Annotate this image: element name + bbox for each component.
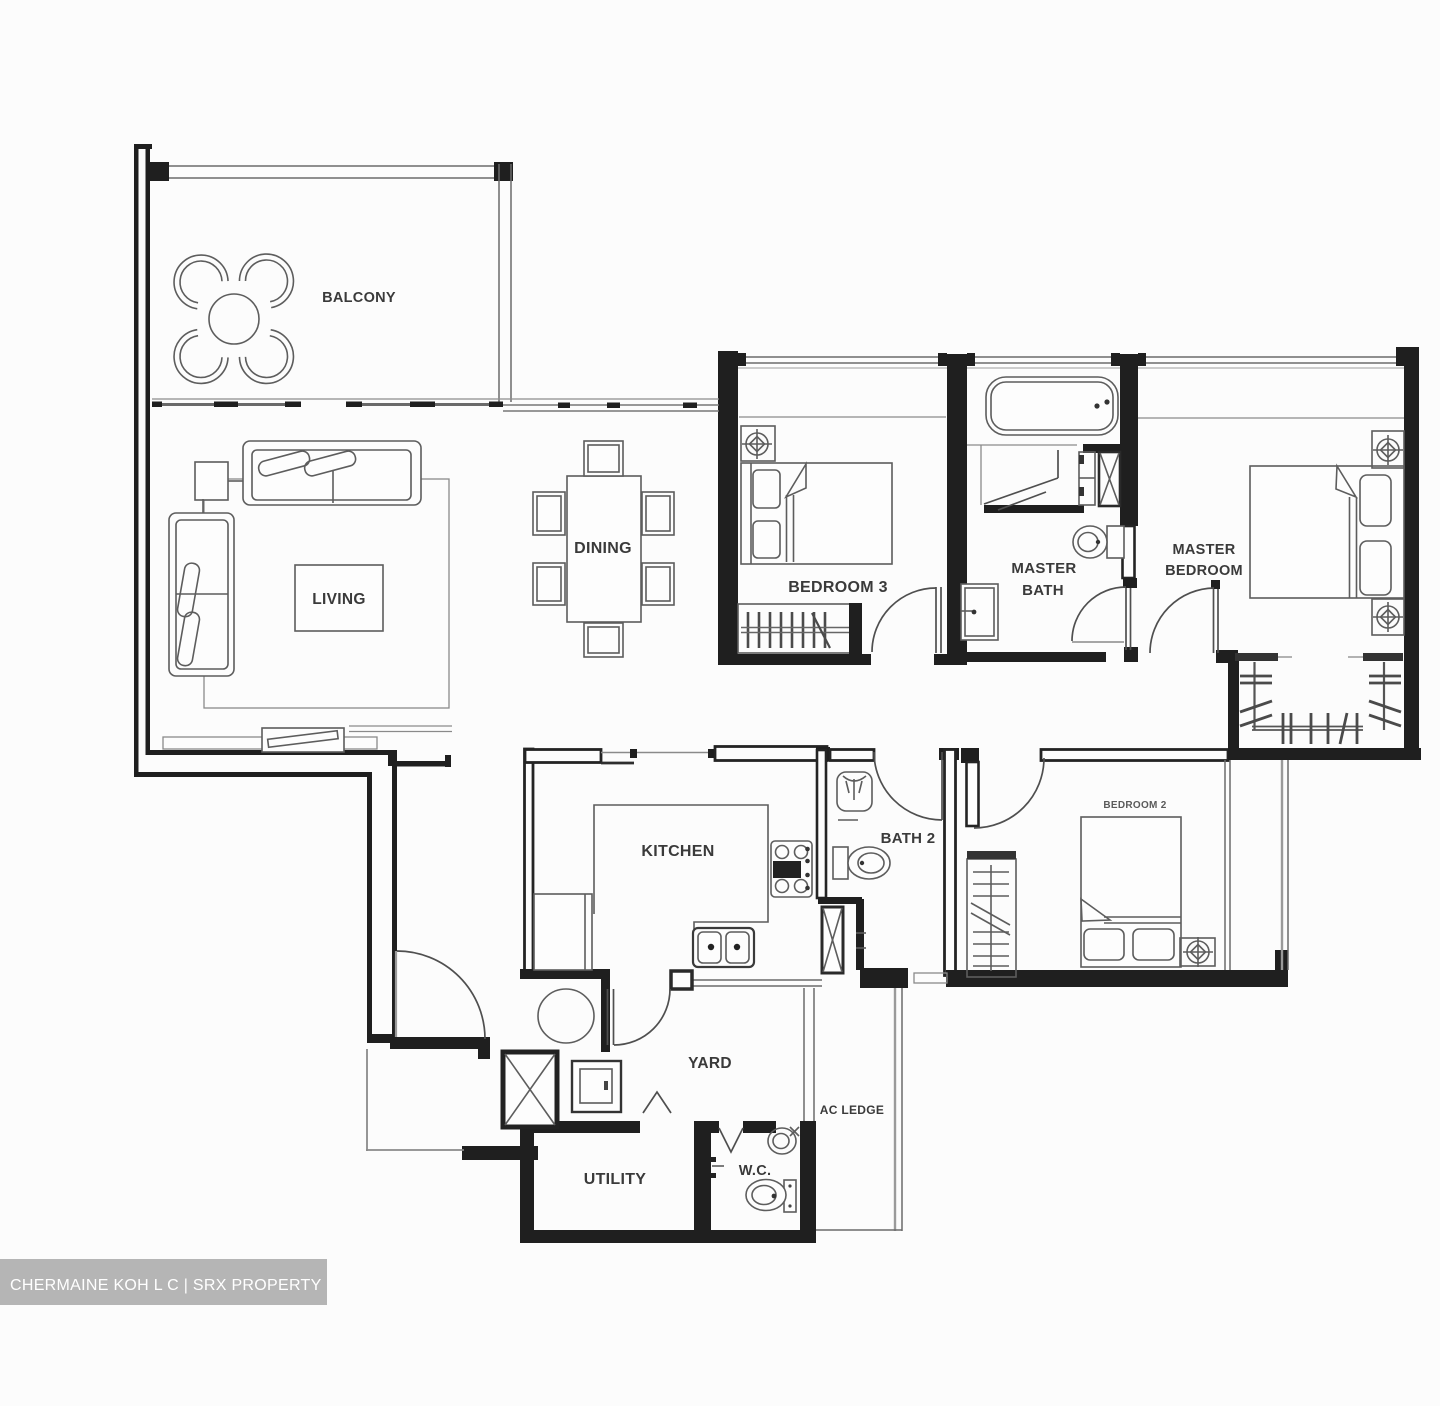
svg-text:LIVING: LIVING [312, 591, 365, 608]
svg-text:W.C.: W.C. [739, 1163, 772, 1179]
svg-text:MASTER: MASTER [1011, 560, 1076, 577]
svg-text:AC LEDGE: AC LEDGE [820, 1103, 884, 1117]
svg-text:YARD: YARD [688, 1055, 732, 1072]
svg-text:BEDROOM: BEDROOM [1165, 563, 1243, 579]
svg-text:BATH: BATH [1022, 582, 1064, 599]
svg-text:CHERMAINE KOH L C | SRX PROPER: CHERMAINE KOH L C | SRX PROPERTY [10, 1277, 322, 1294]
svg-text:DINING: DINING [574, 540, 632, 557]
svg-text:BEDROOM 3: BEDROOM 3 [788, 579, 888, 596]
svg-text:MASTER: MASTER [1172, 542, 1235, 558]
svg-text:UTILITY: UTILITY [584, 1171, 647, 1188]
svg-text:BEDROOM 2: BEDROOM 2 [1103, 800, 1166, 811]
svg-text:BATH 2: BATH 2 [881, 830, 936, 847]
svg-text:BALCONY: BALCONY [322, 290, 396, 306]
svg-text:KITCHEN: KITCHEN [641, 843, 714, 860]
